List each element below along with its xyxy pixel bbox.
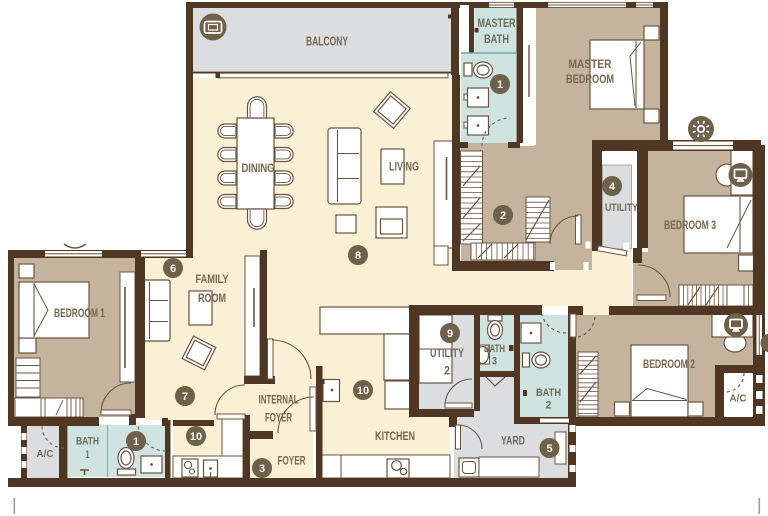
svg-text:6: 6 (170, 263, 176, 275)
svg-text:BATH: BATH (484, 32, 509, 46)
svg-text:BATH: BATH (484, 343, 505, 355)
svg-text:1: 1 (86, 449, 90, 461)
svg-text:INTERNAL: INTERNAL (259, 395, 299, 407)
svg-text:A/C: A/C (37, 448, 54, 460)
svg-text:BEDROOM 2: BEDROOM 2 (643, 357, 695, 371)
svg-text:3: 3 (259, 463, 265, 475)
svg-text:MASTER: MASTER (478, 16, 516, 30)
svg-text:UTILITY: UTILITY (430, 348, 464, 360)
svg-text:5: 5 (546, 443, 552, 455)
svg-text:UTILITY: UTILITY (605, 202, 639, 214)
svg-text:FOYER: FOYER (278, 456, 306, 468)
svg-text:3: 3 (492, 356, 497, 368)
svg-text:BATH: BATH (76, 436, 99, 448)
svg-text:1: 1 (133, 436, 139, 448)
svg-text:FOYER: FOYER (265, 413, 292, 425)
svg-text:8: 8 (355, 250, 361, 262)
svg-text:ROOM: ROOM (198, 293, 226, 305)
svg-text:2: 2 (546, 400, 552, 412)
svg-text:1: 1 (497, 79, 503, 91)
svg-text:FAMILY: FAMILY (196, 274, 229, 286)
svg-text:BEDROOM: BEDROOM (566, 72, 614, 86)
svg-text:2: 2 (444, 366, 450, 378)
svg-text:10: 10 (190, 431, 202, 443)
svg-text:4: 4 (609, 181, 616, 193)
svg-text:7: 7 (182, 391, 188, 403)
svg-text:MASTER: MASTER (569, 57, 612, 71)
svg-text:DINING: DINING (242, 163, 275, 175)
svg-text:2: 2 (500, 210, 506, 222)
svg-text:10: 10 (357, 385, 369, 397)
svg-text:BEDROOM 3: BEDROOM 3 (664, 218, 716, 232)
svg-text:A/C: A/C (730, 393, 747, 405)
svg-text:BEDROOM 1: BEDROOM 1 (54, 306, 105, 320)
svg-text:YARD: YARD (501, 436, 525, 448)
svg-text:KITCHEN: KITCHEN (375, 429, 415, 443)
svg-text:BALCONY: BALCONY (306, 34, 348, 49)
svg-text:9: 9 (447, 328, 453, 340)
svg-text:LIVING: LIVING (389, 162, 419, 174)
svg-text:BATH: BATH (536, 387, 561, 399)
